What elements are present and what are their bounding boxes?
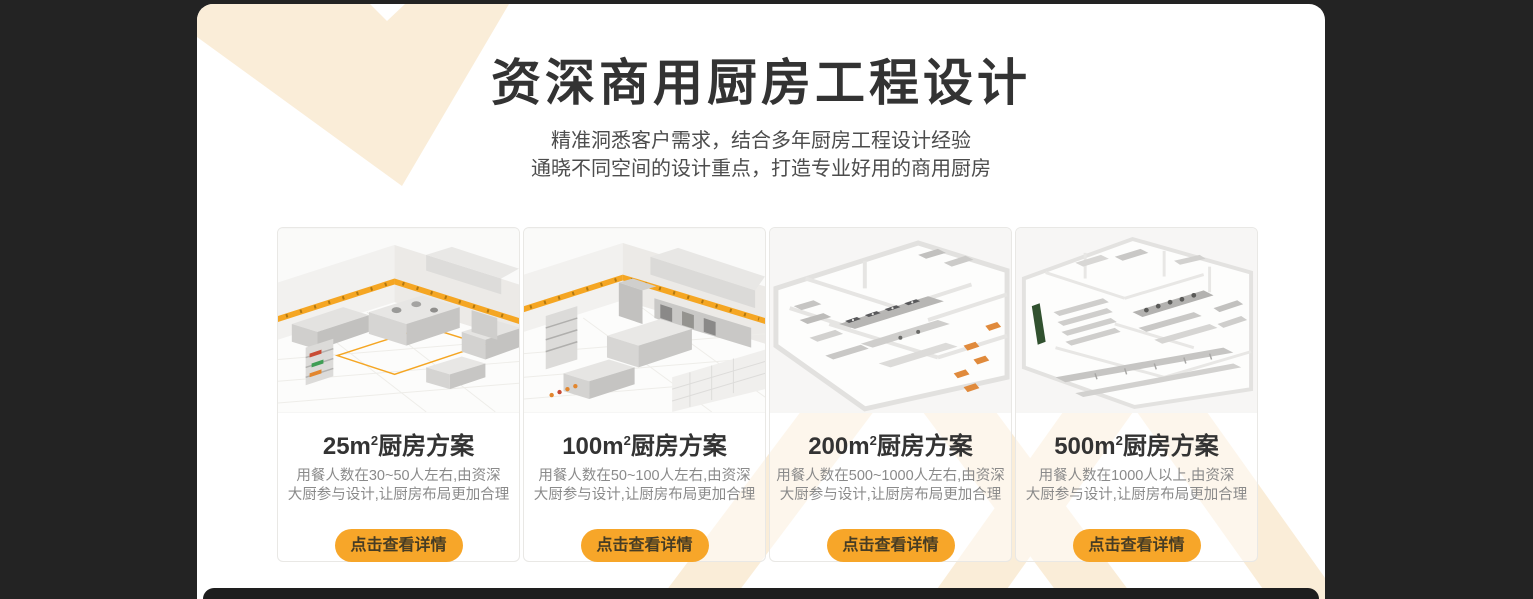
view-details-button[interactable]: 点击查看详情 xyxy=(1073,529,1201,562)
plan-card-description: 用餐人数在30~50人左右,由资深 大厨参与设计,让厨房布局更加合理 xyxy=(278,467,519,505)
plan-card-description: 用餐人数在500~1000人左右,由资深 大厨参与设计,让厨房布局更加合理 xyxy=(770,467,1011,505)
plan-card-title: 100m2厨房方案 xyxy=(524,426,765,462)
kitchen-3d-plan-200-image[interactable] xyxy=(770,228,1011,413)
content-panel: 资深商用厨房工程设计 精准洞悉客户需求，结合多年厨房工程设计经验 通晓不同空间的… xyxy=(197,4,1325,599)
kitchen-floorplan-large-icon xyxy=(770,228,1011,413)
plan-card-title: 500m2厨房方案 xyxy=(1016,426,1257,462)
plan-card-title: 25m2厨房方案 xyxy=(278,426,519,462)
kitchen-isometric-medium-icon xyxy=(524,228,765,413)
plan-card-description: 用餐人数在1000人以上,由资深 大厨参与设计,让厨房布局更加合理 xyxy=(1016,467,1257,505)
kitchen-3d-plan-100-image[interactable] xyxy=(524,228,765,413)
plan-card-25: 25m2厨房方案 用餐人数在30~50人左右,由资深 大厨参与设计,让厨房布局更… xyxy=(277,227,520,562)
view-details-button[interactable]: 点击查看详情 xyxy=(581,529,709,562)
page-title: 资深商用厨房工程设计 xyxy=(197,56,1325,111)
kitchen-3d-plan-500-image[interactable] xyxy=(1016,228,1257,413)
page-subtitle: 精准洞悉客户需求，结合多年厨房工程设计经验 通晓不同空间的设计重点，打造专业好用… xyxy=(197,127,1325,183)
view-details-button[interactable]: 点击查看详情 xyxy=(335,529,463,562)
section-header: 资深商用厨房工程设计 精准洞悉客户需求，结合多年厨房工程设计经验 通晓不同空间的… xyxy=(197,56,1325,183)
subtitle-line-1: 精准洞悉客户需求，结合多年厨房工程设计经验 xyxy=(197,127,1325,155)
plan-card-200: 200m2厨房方案 用餐人数在500~1000人左右,由资深 大厨参与设计,让厨… xyxy=(769,227,1012,562)
plan-card-100: 100m2厨房方案 用餐人数在50~100人左右,由资深 大厨参与设计,让厨房布… xyxy=(523,227,766,562)
subtitle-line-2: 通晓不同空间的设计重点，打造专业好用的商用厨房 xyxy=(197,155,1325,183)
plan-card-description: 用餐人数在50~100人左右,由资深 大厨参与设计,让厨房布局更加合理 xyxy=(524,467,765,505)
kitchen-floorplan-xlarge-icon xyxy=(1016,228,1257,413)
plan-cards: 25m2厨房方案 用餐人数在30~50人左右,由资深 大厨参与设计,让厨房布局更… xyxy=(277,227,1258,562)
kitchen-3d-plan-25-image[interactable] xyxy=(278,228,519,413)
plan-card-title: 200m2厨房方案 xyxy=(770,426,1011,462)
view-details-button[interactable]: 点击查看详情 xyxy=(827,529,955,562)
kitchen-isometric-small-icon xyxy=(278,228,519,413)
next-section-edge xyxy=(203,588,1319,599)
plan-card-500: 500m2厨房方案 用餐人数在1000人以上,由资深 大厨参与设计,让厨房布局更… xyxy=(1015,227,1258,562)
